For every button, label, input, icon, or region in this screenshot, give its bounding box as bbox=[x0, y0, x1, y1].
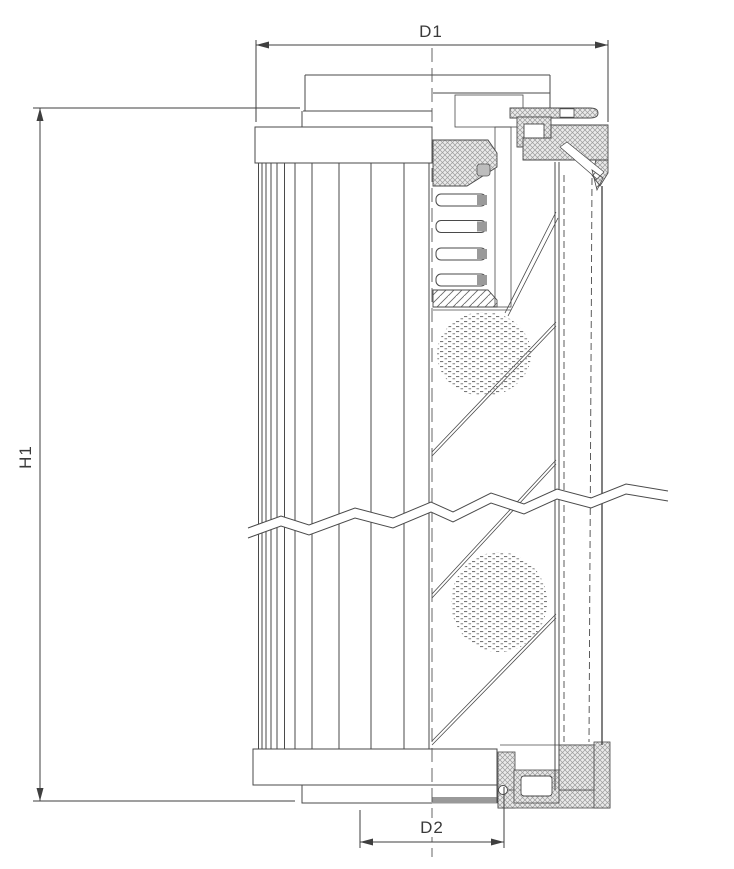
seal-bead bbox=[477, 164, 490, 176]
cup-inner-slot bbox=[521, 776, 552, 796]
perforation-patch-lower bbox=[451, 552, 547, 652]
break-line bbox=[248, 484, 668, 538]
dimension-h1-label: H1 bbox=[16, 445, 35, 469]
top-spigot bbox=[302, 75, 550, 127]
drain-hole bbox=[499, 786, 508, 795]
filter-element-drawing: D1 H1 D2 bbox=[0, 0, 734, 869]
seal-pin-bar bbox=[510, 108, 598, 118]
bottom-seal-cup bbox=[497, 742, 610, 808]
dimension-d1-label: D1 bbox=[419, 22, 443, 41]
louver-slots bbox=[436, 194, 487, 286]
resin-seal-blob bbox=[433, 140, 497, 186]
top-end-cap bbox=[255, 127, 432, 163]
dimension-d2-label: D2 bbox=[420, 818, 444, 837]
core-tube bbox=[555, 162, 559, 790]
hidden-lines bbox=[564, 175, 592, 742]
perforation-patch-upper bbox=[437, 312, 531, 396]
technical-drawing-page: D1 H1 D2 bbox=[0, 0, 734, 869]
dimension-h1: H1 bbox=[16, 108, 300, 801]
bottom-end-cap bbox=[253, 749, 505, 804]
bottom-seal-gray-bar bbox=[432, 797, 505, 804]
filter-pleats bbox=[259, 163, 430, 749]
